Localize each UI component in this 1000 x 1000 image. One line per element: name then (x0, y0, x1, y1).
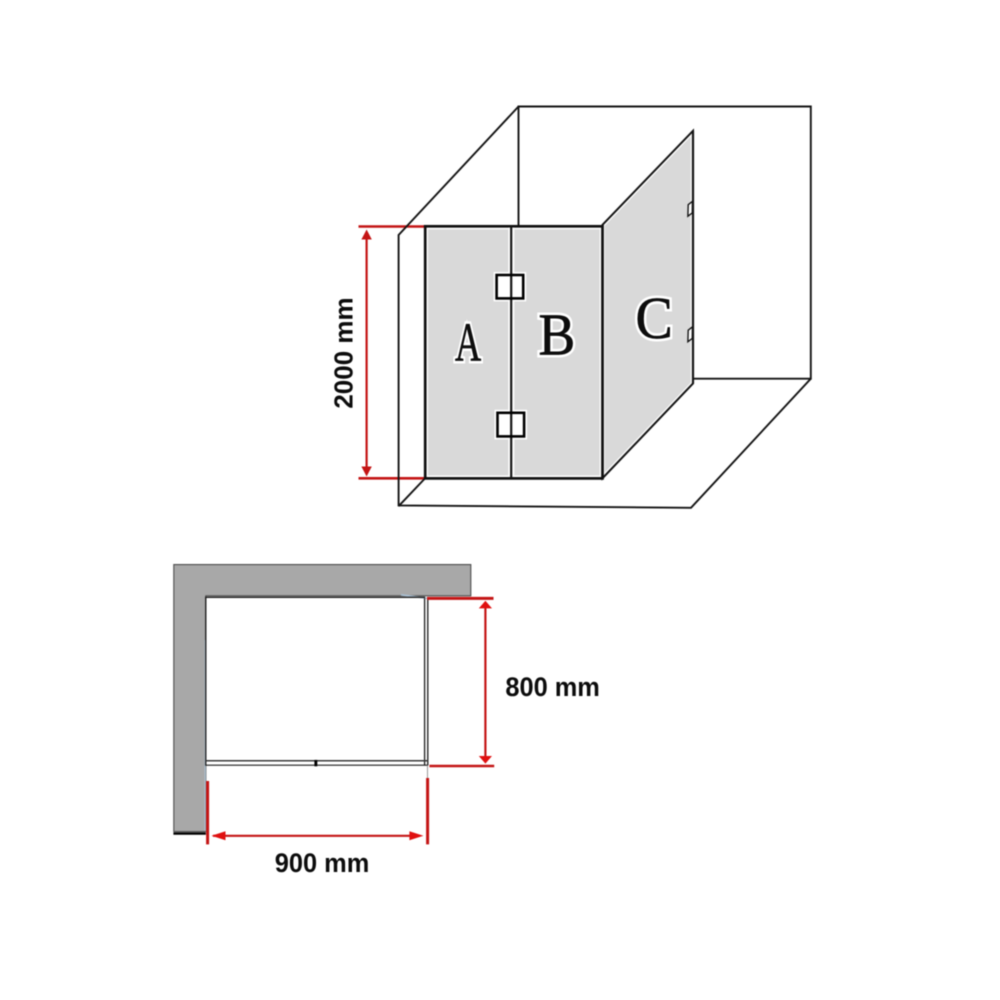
svg-text:C: C (635, 287, 672, 352)
svg-text:900 mm: 900 mm (275, 847, 369, 878)
svg-text:B: B (539, 303, 576, 368)
svg-text:A: A (455, 312, 481, 373)
svg-text:2000 mm: 2000 mm (329, 297, 359, 408)
svg-text:800 mm: 800 mm (505, 671, 599, 702)
